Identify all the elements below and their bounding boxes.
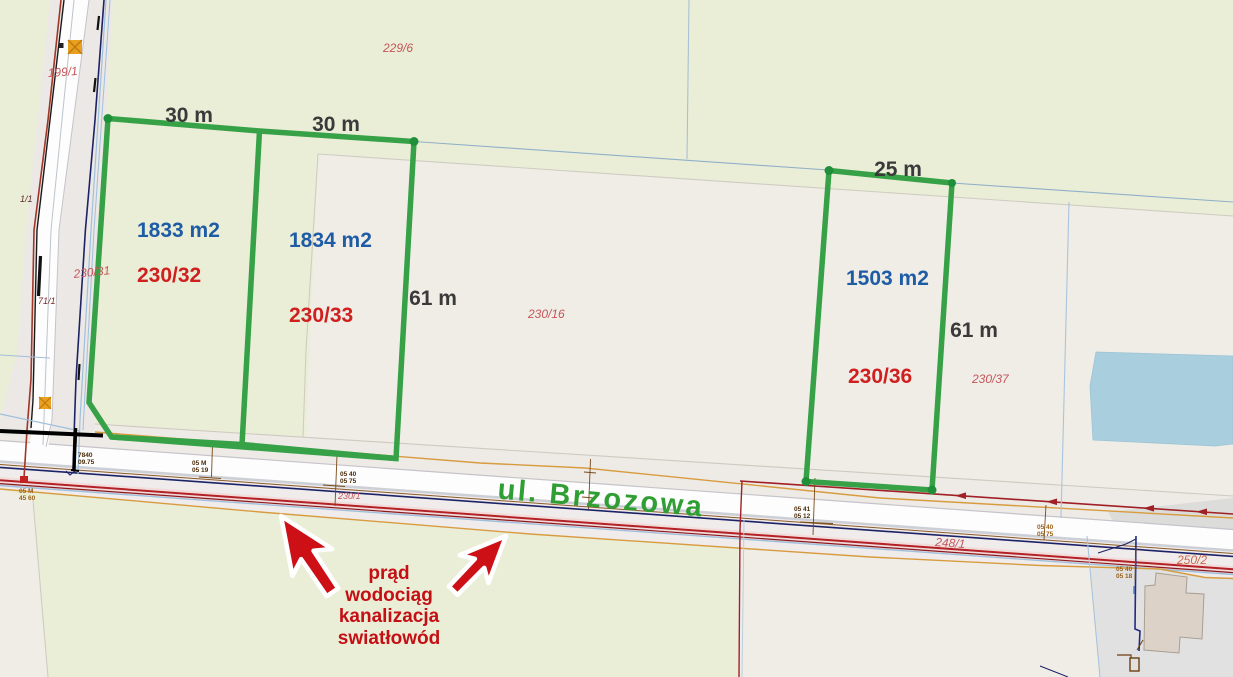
svg-text:1834 m2: 1834 m2 <box>289 229 372 252</box>
svg-text:1503 m2: 1503 m2 <box>846 267 929 290</box>
svg-text:05 M: 05 M <box>19 488 33 495</box>
svg-text:199/1: 199/1 <box>47 64 78 80</box>
svg-text:05 41: 05 41 <box>794 506 811 513</box>
svg-text:05 M: 05 M <box>192 460 206 467</box>
svg-text:230/33: 230/33 <box>289 304 353 327</box>
svg-text:248/1: 248/1 <box>934 535 966 551</box>
svg-text:230/37: 230/37 <box>971 372 1010 386</box>
svg-text:05 12: 05 12 <box>794 513 811 520</box>
svg-text:230/32: 230/32 <box>137 264 201 287</box>
svg-text:71/1: 71/1 <box>38 296 56 306</box>
svg-text:45 60: 45 60 <box>19 495 36 502</box>
svg-text:61 m: 61 m <box>950 319 998 342</box>
svg-text:05 40: 05 40 <box>340 471 357 478</box>
svg-text:05 40: 05 40 <box>1037 524 1054 531</box>
svg-text:05 75: 05 75 <box>1037 531 1054 538</box>
svg-text:61 m: 61 m <box>409 287 457 310</box>
svg-text:7840: 7840 <box>78 452 93 459</box>
svg-text:prąd: prąd <box>368 563 409 584</box>
svg-text:229/6: 229/6 <box>382 41 413 55</box>
svg-text:25 m: 25 m <box>874 158 922 181</box>
svg-text:05 19: 05 19 <box>192 467 209 474</box>
svg-text:1833 m2: 1833 m2 <box>137 219 220 242</box>
svg-text:05 75: 05 75 <box>340 478 357 485</box>
svg-text:250/2: 250/2 <box>1176 553 1207 567</box>
svg-text:30 m: 30 m <box>312 113 360 136</box>
svg-text:230/16: 230/16 <box>527 307 565 321</box>
svg-text:230/1: 230/1 <box>337 491 361 501</box>
svg-text:kanalizacja: kanalizacja <box>339 606 440 627</box>
svg-text:swiatłowód: swiatłowód <box>338 628 440 649</box>
svg-text:05 18: 05 18 <box>1116 573 1133 580</box>
svg-text:09.75: 09.75 <box>78 459 95 466</box>
svg-text:230/36: 230/36 <box>848 365 912 388</box>
svg-text:30 m: 30 m <box>165 104 213 127</box>
svg-text:wodociąg: wodociąg <box>344 585 433 606</box>
svg-text:1/1: 1/1 <box>20 194 33 204</box>
svg-text:05 40: 05 40 <box>1116 566 1133 573</box>
